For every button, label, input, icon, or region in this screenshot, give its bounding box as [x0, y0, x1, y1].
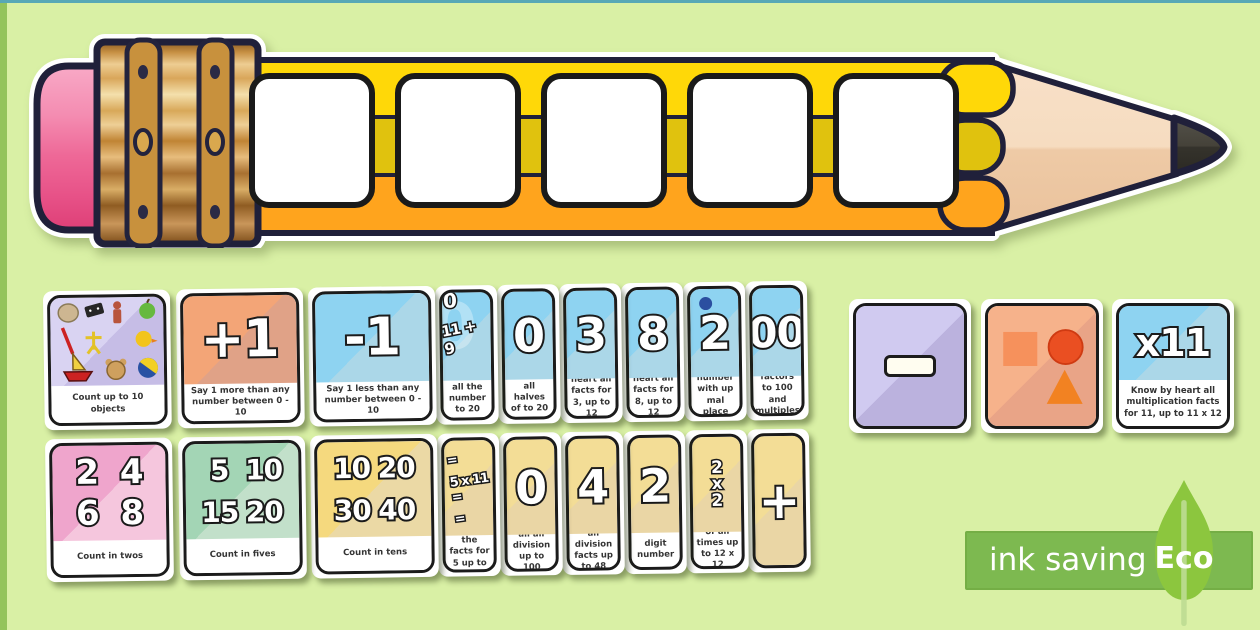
bonds-equation: 11 + 9	[442, 314, 491, 358]
flashcard-row-top: Count up to 10 objects+1Say 1 more than …	[43, 281, 809, 431]
card-art-decimal-2: 2	[690, 289, 739, 378]
counting-number: 40	[378, 493, 415, 527]
card-plus-card: +	[747, 429, 811, 573]
card-times-11: x11Know by heart all multiplication fact…	[1112, 299, 1234, 433]
equation-lines: =5 x 11 ==	[444, 448, 493, 528]
pencil-svg	[25, 34, 1235, 248]
card-frame: 10203040Count in tens	[314, 438, 435, 575]
counting-number: 20	[377, 451, 414, 485]
pencil-blank-squares	[252, 76, 956, 205]
card-frame: 2468Count in twos	[49, 442, 170, 579]
card-symbol: 2	[699, 306, 731, 360]
card-art-count-in-twos: 2468	[52, 445, 166, 542]
card-art-number-bonds: 0011 + 9	[442, 292, 491, 381]
card-caption: art all the facts for 5 up to 12	[445, 535, 493, 570]
card-symbol: +	[758, 471, 800, 530]
card-caption: Count in tens	[318, 536, 431, 572]
card-count-in-tens: 10203040Count in tens	[310, 434, 439, 579]
card-art-facts-8: 8	[628, 289, 677, 378]
card-digit-2: 2digit number	[623, 430, 687, 574]
equation-line: =	[446, 452, 458, 468]
card-symbol: 2	[639, 458, 671, 512]
blank-square-1	[252, 76, 372, 205]
card-facts-5: =5 x 11 ==art all the facts for 5 up to …	[437, 433, 501, 577]
card-art-factors-100: 00	[752, 288, 801, 377]
card-art-halves: 0	[504, 291, 553, 380]
card-subtraction-symbol	[849, 299, 971, 433]
card-symbol: 4	[577, 459, 609, 513]
card-frame: -1Say 1 less than any number between 0 -…	[312, 290, 433, 423]
card-caption: number with up mal place	[691, 377, 740, 415]
card-art-subtraction-symbol	[856, 306, 964, 426]
equation-line: 5 x 11 =	[449, 470, 494, 505]
card-caption: Say 1 less than any number between 0 - 1…	[316, 381, 430, 420]
counting-number: 2	[75, 452, 98, 492]
card-times-12x12: 2x2of all times up to 12 x 12	[685, 429, 749, 573]
card-frame: x11Know by heart all multiplication fact…	[1116, 303, 1230, 429]
card-frame: 2x2of all times up to 12 x 12	[689, 434, 745, 570]
blank-square-3	[544, 76, 664, 205]
counting-number: 15	[201, 495, 238, 529]
card-caption: digit number	[631, 532, 679, 567]
card-caption: all the number to 20	[443, 380, 492, 418]
card-caption: Count in twos	[53, 540, 166, 576]
card-caption: all halves of to 20	[505, 379, 554, 417]
card-symbol: 0	[513, 308, 545, 362]
card-art-facts-5: =5 x 11 ==	[444, 440, 493, 536]
card-frame: 00recall factors to 100 and multiples of…	[749, 285, 805, 417]
card-frame	[985, 303, 1099, 429]
counting-number: 30	[334, 493, 371, 527]
card-art-minus-one: -1	[315, 293, 429, 383]
counting-number: 4	[120, 452, 143, 492]
card-art-shapes	[988, 306, 1096, 426]
card-caption: all all division up to 100	[507, 534, 555, 569]
card-number-bonds: 0011 + 9all the number to 20	[435, 285, 499, 425]
decimal-dot	[699, 297, 712, 310]
flashcard-row-bottom: 2468Count in twos5101520Count in fives10…	[45, 429, 811, 583]
card-symbol: +1	[200, 309, 279, 370]
blank-square-2	[398, 76, 518, 205]
blank-square-4	[690, 76, 810, 205]
card-frame: 0011 + 9all the number to 20	[439, 289, 495, 421]
card-symbol: x11	[1136, 321, 1210, 365]
card-plus-one: +1Say 1 more than any number between 0 -…	[175, 288, 304, 429]
card-art-times-11: x11	[1119, 306, 1227, 380]
counting-number: 6	[76, 494, 99, 534]
card-minus-one: -1Say 1 less than any number between 0 -…	[308, 286, 437, 427]
card-frame: 0all halves of to 20	[501, 288, 557, 420]
card-frame: 8heart all facts for 8, up to 12	[625, 286, 681, 418]
card-art-division-100: 0	[506, 439, 555, 535]
card-frame: 2digit number	[627, 434, 683, 570]
card-caption: heart all facts for 3, up to 12	[567, 378, 616, 416]
card-facts-3: 3heart all facts for 3, up to 12	[559, 283, 623, 423]
card-count-in-twos: 2468Count in twos	[45, 438, 174, 583]
card-caption: of all times up to 12 x 12	[693, 532, 741, 567]
eco-label: Eco	[1149, 541, 1219, 576]
card-art-count-in-tens: 10203040	[317, 441, 431, 538]
card-art-facts-3: 3	[566, 290, 615, 379]
stacked-line: 2	[711, 492, 722, 508]
counting-numbers: 2468	[52, 445, 166, 542]
card-division-48: 4all division facts up to 48	[561, 431, 625, 575]
card-symbol: 00	[752, 307, 801, 357]
card-caption: Know by heart all multiplication facts f…	[1119, 380, 1227, 426]
counting-number: 5	[210, 454, 229, 487]
card-symbol: 3	[575, 307, 607, 361]
blank-square-5	[836, 76, 956, 205]
card-art-digit-2: 2	[630, 437, 679, 533]
card-frame: +1Say 1 more than any number between 0 -…	[179, 292, 300, 425]
card-halves: 0all halves of to 20	[497, 284, 561, 424]
card-caption: heart all facts for 8, up to 12	[629, 377, 678, 415]
counting-number: 20	[246, 495, 283, 529]
card-caption: all division facts up to 48	[569, 533, 617, 568]
card-shapes	[981, 299, 1103, 433]
counting-numbers: 10203040	[317, 441, 431, 538]
card-frame: 5101520Count in fives	[182, 440, 303, 577]
stacked-expression: 2x2	[711, 460, 723, 509]
card-facts-8: 8heart all facts for 8, up to 12	[621, 282, 685, 422]
card-frame: =5 x 11 ==art all the facts for 5 up to …	[441, 437, 497, 573]
counting-number: 8	[120, 493, 143, 533]
counting-numbers: 5101520	[185, 443, 299, 540]
card-symbol: 8	[637, 307, 669, 361]
card-frame	[853, 303, 967, 429]
screenshot-top-edge	[0, 0, 1260, 3]
card-caption: Count up to 10 objects	[51, 385, 165, 424]
card-art-count-objects	[50, 297, 164, 387]
card-frame: 4all division facts up to 48	[565, 435, 621, 571]
card-caption: Count in fives	[186, 538, 299, 574]
card-art-times-12x12: 2x2	[692, 437, 741, 533]
counting-number: 10	[245, 453, 282, 487]
card-caption: Say 1 more than any number between 0 - 1…	[184, 383, 298, 422]
card-art-division-48: 4	[568, 438, 617, 534]
card-art-count-in-fives: 5101520	[185, 443, 299, 540]
card-frame: 3heart all facts for 3, up to 12	[563, 287, 619, 419]
card-symbol: 0	[515, 460, 547, 514]
card-division-100: 0all all division up to 100	[499, 432, 563, 576]
bonds-top-digit: 0	[443, 292, 456, 313]
minus-symbol	[884, 355, 936, 377]
pencil-ferrule	[97, 40, 258, 246]
objects-picture	[55, 299, 160, 384]
pencil-illustration	[25, 34, 1235, 248]
card-art-plus-one: +1	[182, 295, 296, 385]
screenshot-left-edge	[0, 0, 7, 630]
card-symbol: -1	[344, 307, 401, 368]
card-frame: 0all all division up to 100	[503, 436, 559, 572]
card-frame: +	[751, 433, 807, 569]
card-frame: 2number with up mal place	[687, 286, 743, 418]
card-decimal-2: 2number with up mal place	[683, 281, 747, 421]
card-count-in-fives: 5101520Count in fives	[177, 436, 306, 581]
shapes-picture	[990, 321, 1094, 411]
card-frame: Count up to 10 objects	[47, 294, 168, 427]
card-count-objects: Count up to 10 objects	[43, 290, 172, 431]
card-caption: recall factors to 100 and multiples of 1…	[753, 376, 802, 414]
counting-number: 10	[333, 452, 370, 486]
flashcard-sheet: Count up to 10 objects+1Say 1 more than …	[43, 281, 811, 583]
equation-line: =	[454, 511, 466, 527]
card-art-plus-card: +	[754, 436, 804, 566]
card-factors-100: 00recall factors to 100 and multiples of…	[745, 281, 809, 421]
